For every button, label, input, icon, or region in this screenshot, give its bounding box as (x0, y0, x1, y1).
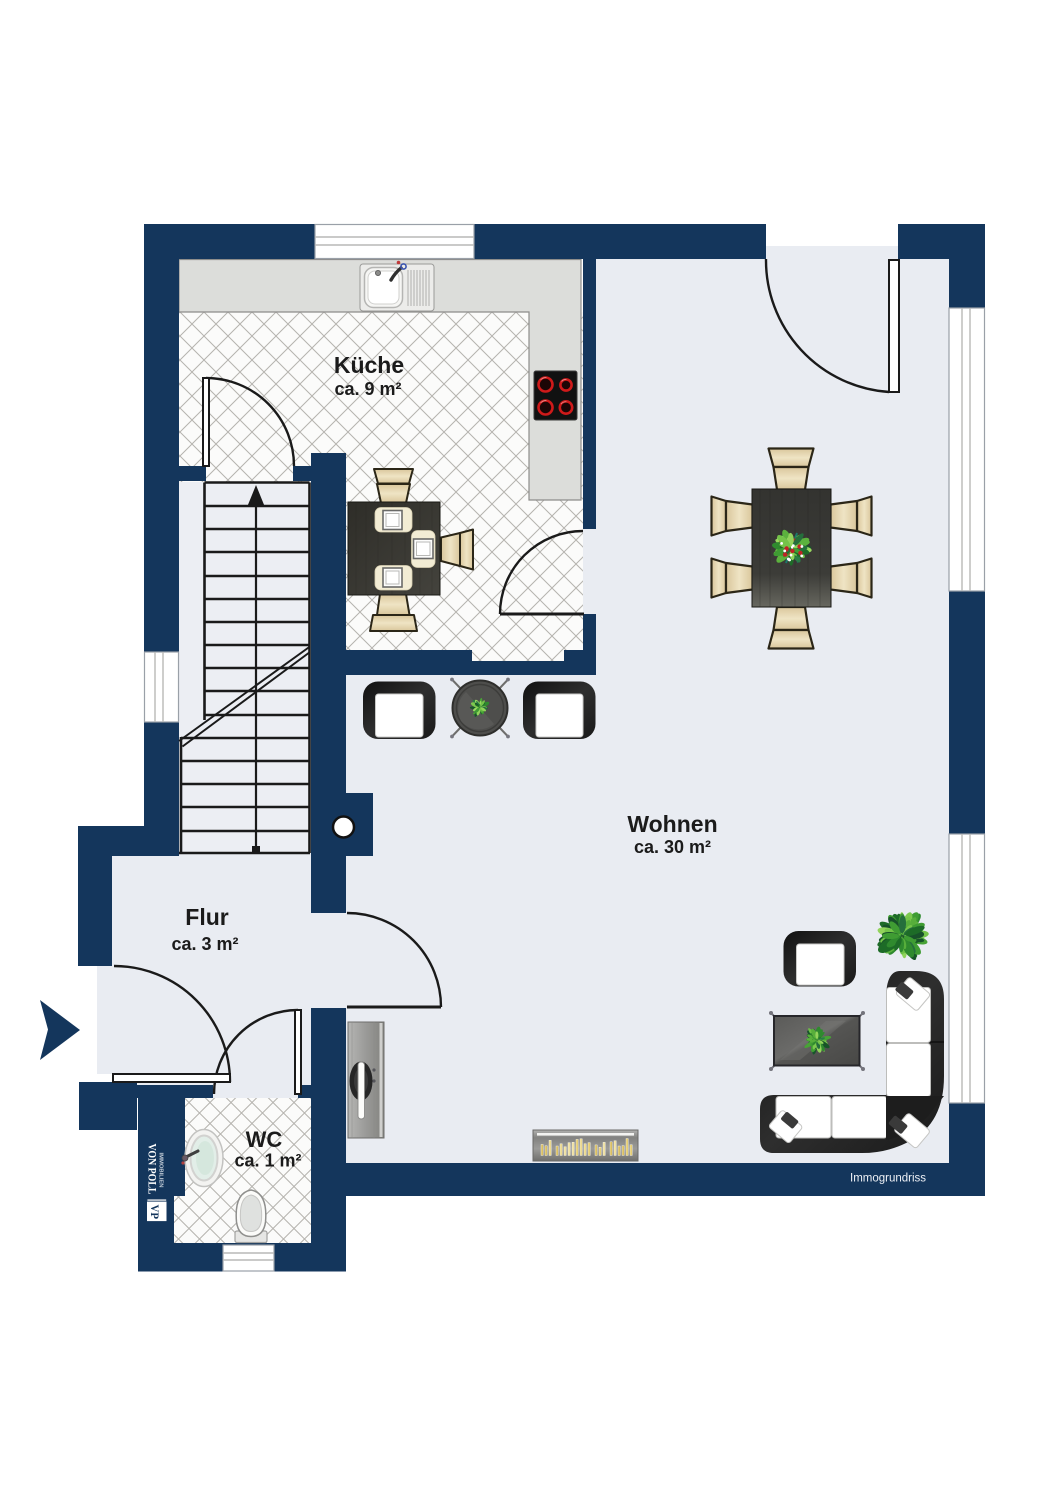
svg-text:ca. 9 m²: ca. 9 m² (334, 379, 401, 399)
svg-text:Flur: Flur (185, 904, 228, 930)
svg-text:ca. 1 m²: ca. 1 m² (234, 1151, 301, 1171)
svg-text:ca. 3 m²: ca. 3 m² (171, 934, 238, 954)
svg-text:Wohnen: Wohnen (627, 811, 717, 837)
svg-text:ca. 30 m²: ca. 30 m² (634, 837, 711, 857)
svg-text:Küche: Küche (334, 352, 404, 378)
svg-text:Immogrundriss: Immogrundriss (850, 1173, 926, 1185)
svg-text:WC: WC (246, 1127, 283, 1152)
svg-text:IMMOBILIEN: IMMOBILIEN (158, 1153, 164, 1188)
svg-text:VON POLL: VON POLL (146, 1144, 158, 1195)
svg-text:VP: VP (148, 1205, 162, 1220)
